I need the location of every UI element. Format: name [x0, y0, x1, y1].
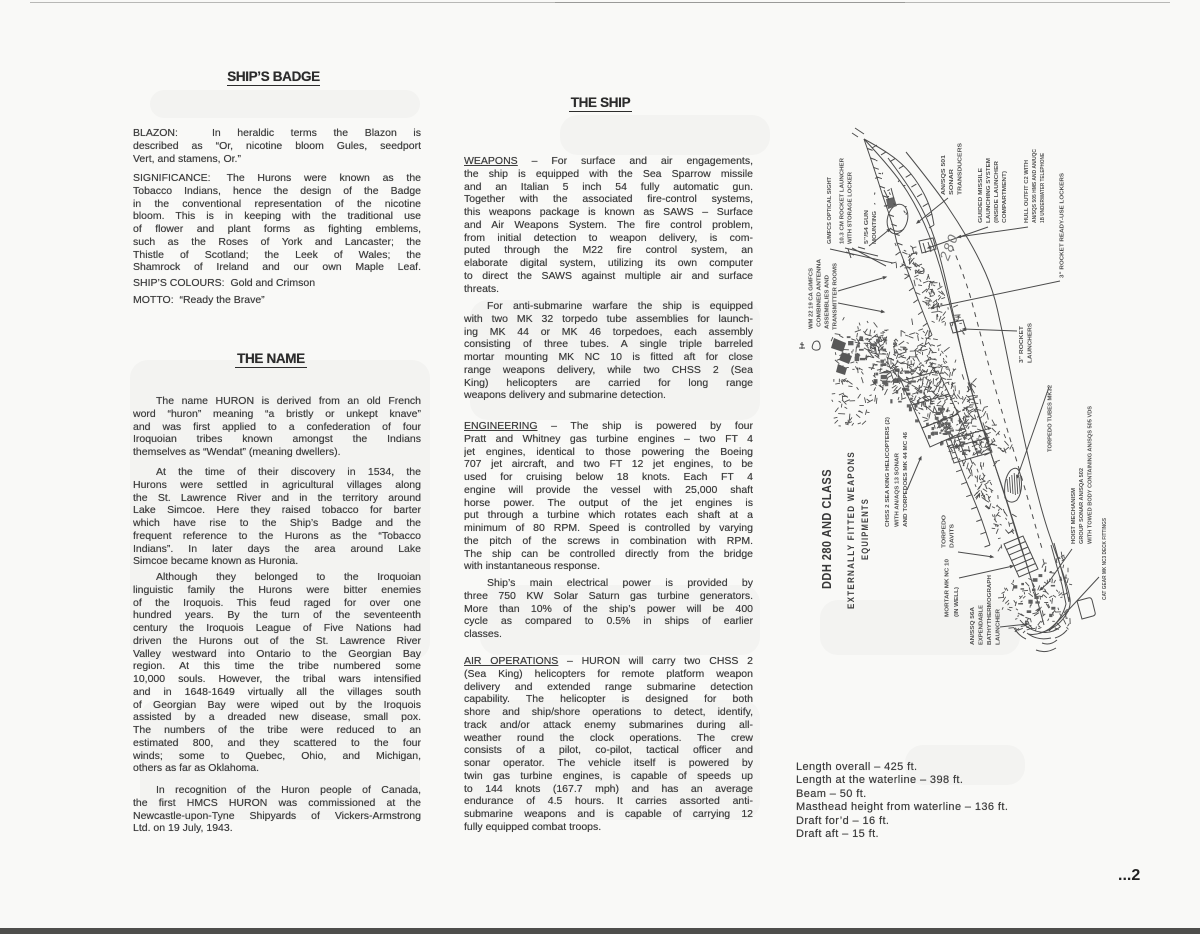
- svg-text:COMPARTMENT): COMPARTMENT): [1002, 171, 1008, 223]
- svg-text:CAT GEAR MK NC3 DECK FITTINGS: CAT GEAR MK NC3 DECK FITTINGS: [1102, 518, 1108, 600]
- svg-text:DAVITS: DAVITS: [950, 524, 956, 548]
- svg-text:3” ROCKET READY-USE LOCKERS: 3” ROCKET READY-USE LOCKERS: [1060, 173, 1066, 278]
- svg-text:AN/SSQ 56A: AN/SSQ 56A: [970, 606, 976, 645]
- svg-text:HOIST MECHANISM: HOIST MECHANISM: [1071, 488, 1077, 544]
- svg-text:WITH AN/AQS 13 SONAR: WITH AN/AQS 13 SONAR: [895, 452, 901, 527]
- svg-text:TRANSDUCERS: TRANSDUCERS: [958, 143, 964, 195]
- svg-text:1B UNDERWATER TELEPHONE: 1B UNDERWATER TELEPHONE: [1040, 153, 1046, 223]
- svg-text:WM 22 19 CA G/MFCS: WM 22 19 CA G/MFCS: [809, 268, 815, 329]
- svg-text:5”/54 GUN: 5”/54 GUN: [864, 210, 870, 244]
- svg-text:WITH STORAGE LOCKER: WITH STORAGE LOCKER: [848, 171, 854, 244]
- svg-text:CHSS 2 SEA KING HELICOPTERS (2: CHSS 2 SEA KING HELICOPTERS (2): [885, 417, 891, 527]
- svg-text:MOUNTING: MOUNTING: [872, 211, 878, 244]
- svg-text:10.3 CM ROCKET LAUNCHER: 10.3 CM ROCKET LAUNCHER: [840, 157, 846, 244]
- svg-text:LAUNCHER: LAUNCHER: [996, 608, 1002, 645]
- svg-text:LAUNCHERS: LAUNCHERS: [1028, 323, 1034, 363]
- svg-text:AN/SQS 501: AN/SQS 501: [941, 154, 947, 195]
- svg-text:HULL OUTFIT C2 WITH: HULL OUTFIT C2 WITH: [1024, 160, 1030, 223]
- svg-text:3” ROCKET: 3” ROCKET: [1019, 326, 1025, 363]
- svg-text:BATHYTHERMOGRAPH: BATHYTHERMOGRAPH: [987, 575, 993, 645]
- svg-text:DDH 280 AND CLASS: DDH 280 AND CLASS: [820, 469, 834, 589]
- svg-text:EXTERNALLY FITTED WEAPONS: EXTERNALLY FITTED WEAPONS: [846, 451, 857, 609]
- svg-text:WITH TOWED BODY CONTAINING AN/: WITH TOWED BODY CONTAINING AN/SQS 505 VD…: [1088, 406, 1094, 544]
- svg-text:EQUIPMENTS: EQUIPMENTS: [860, 498, 871, 560]
- svg-text:TORPEDO TUBES MK32: TORPEDO TUBES MK32: [1048, 384, 1054, 452]
- svg-text:(INSIDE LAUNCHER: (INSIDE LAUNCHER: [994, 160, 1000, 223]
- svg-text:AND TORPEDOES MK 44 MC 46: AND TORPEDOES MK 44 MC 46: [903, 431, 909, 527]
- svg-text:G/MFCS OPTICAL SIGHT: G/MFCS OPTICAL SIGHT: [827, 177, 833, 244]
- svg-text:(IN WELL): (IN WELL): [954, 587, 960, 617]
- svg-text:GROUP SONAR AN/SQA 502: GROUP SONAR AN/SQA 502: [1079, 467, 1085, 544]
- svg-text:TORPEDO: TORPEDO: [942, 515, 948, 548]
- svg-text:MORTAR MK NC 10: MORTAR MK NC 10: [945, 558, 951, 617]
- svg-text:TRANSMITTER ROOMS: TRANSMITTER ROOMS: [833, 263, 839, 330]
- svg-text:GUIDED MISSILE: GUIDED MISSILE: [978, 168, 984, 223]
- svg-text:SONAR: SONAR: [949, 168, 955, 195]
- svg-text:COMBINED ANTENNA: COMBINED ANTENNA: [817, 258, 823, 327]
- svg-text:ASSEMBLIES AND: ASSEMBLIES AND: [825, 275, 831, 329]
- svg-text:EXPENDABLE: EXPENDABLE: [979, 605, 985, 645]
- svg-text:LAUNCHING SYSTEM: LAUNCHING SYSTEM: [986, 158, 992, 223]
- svg-text:AN/SQS 505 HMS AND AN/UQC: AN/SQS 505 HMS AND AN/UQC: [1032, 148, 1038, 223]
